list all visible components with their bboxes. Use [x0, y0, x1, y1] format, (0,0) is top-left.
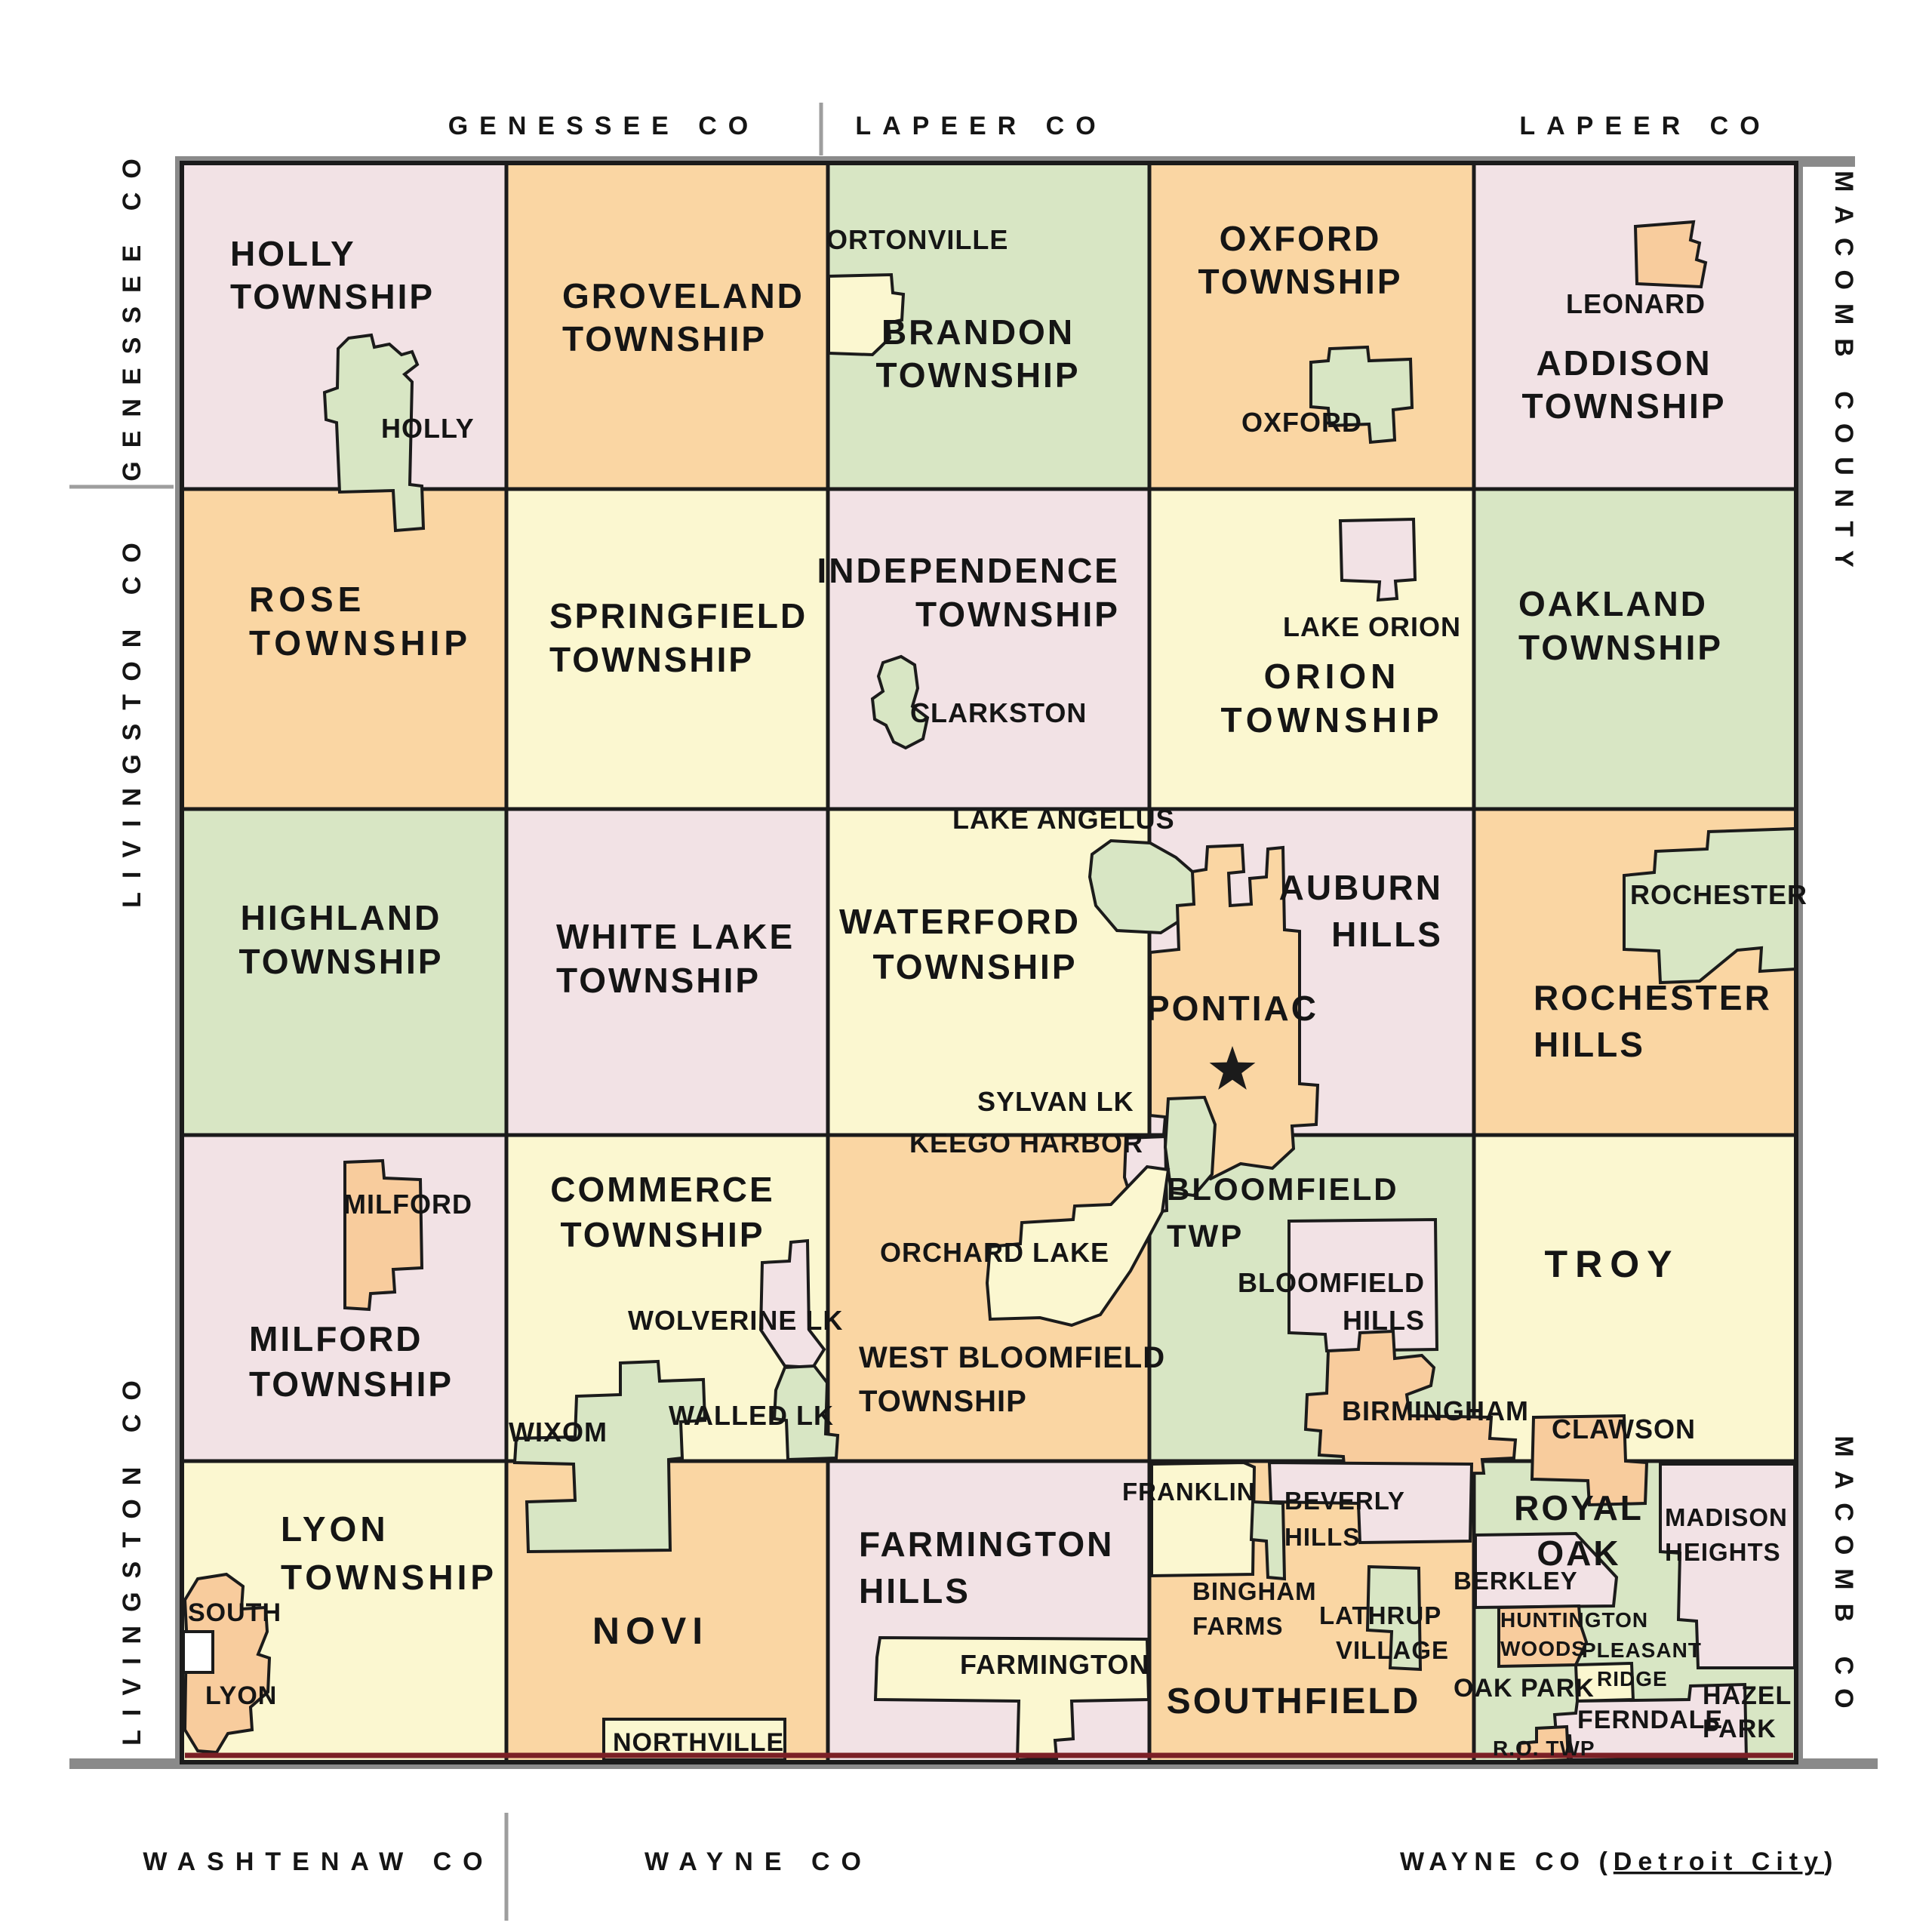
- label-ferndale: FERNDALE: [1577, 1706, 1723, 1734]
- label-clarkston: CLARKSTON: [910, 697, 1087, 728]
- label-novi: NOVI: [592, 1610, 709, 1652]
- label-orchard-lake: ORCHARD LAKE: [880, 1237, 1109, 1268]
- region-independence-township: [828, 489, 1149, 809]
- region-orion-township: [1149, 489, 1474, 809]
- label-milford: MILFORD: [343, 1189, 472, 1220]
- label-ortonville: ORTONVILLE: [826, 224, 1008, 255]
- label-southfield: SOUTHFIELD: [1167, 1681, 1421, 1721]
- label-berkley: BERKLEY: [1454, 1567, 1578, 1595]
- label-lake-orion: LAKE ORION: [1283, 611, 1461, 642]
- label-leonard: LEONARD: [1566, 288, 1706, 319]
- label-macomb-county-right: MACOMB COUNTY: [1829, 171, 1858, 581]
- label-wayne-co-bottom: WAYNE CO: [645, 1847, 872, 1876]
- label-pontiac: PONTIAC: [1146, 989, 1318, 1028]
- label-birmingham: BIRMINGHAM: [1342, 1395, 1529, 1426]
- label-south-lyon-2: LYON: [205, 1681, 277, 1710]
- label-northville: NORTHVILLE: [613, 1728, 784, 1757]
- label-macomb-co-right: MACOMB CO: [1829, 1435, 1858, 1721]
- label-wayne-co-detroit-city: WAYNE CO (Detroit City): [1400, 1847, 1838, 1876]
- label-troy: TROY: [1545, 1243, 1680, 1285]
- label-farmington: FARMINGTON: [960, 1649, 1149, 1680]
- label-wolverine-lk: WOLVERINE LK: [628, 1305, 843, 1336]
- county-map-svg: HOLLYTOWNSHIPGROVELANDTOWNSHIPBRANDONTOW…: [0, 0, 1932, 1932]
- label-south-lyon-1: SOUTH: [188, 1598, 281, 1627]
- region-farmington-hills: [828, 1461, 1149, 1762]
- label-clawson: CLAWSON: [1552, 1414, 1696, 1444]
- label-lapeer-co-top-left: LAPEER CO: [855, 112, 1106, 140]
- label-genessee-co-left: GENESSEE CO: [118, 145, 146, 481]
- label-genessee-co-top: GENESSEE CO: [448, 112, 760, 140]
- label-oak-park: OAK PARK: [1454, 1674, 1595, 1703]
- label-keego-harbor: KEEGO HARBOR: [909, 1128, 1143, 1158]
- label-sylvan-lk: SYLVAN LK: [977, 1086, 1134, 1117]
- label-rochester: ROCHESTER: [1630, 879, 1807, 910]
- label-livingston-co-lower: LIVINGSTON CO: [118, 1367, 146, 1746]
- label-walled-lk: WALLED LK: [669, 1400, 834, 1431]
- label-holly: HOLLY: [381, 413, 475, 444]
- label-wixom: WIXOM: [509, 1417, 608, 1447]
- label-ro-twp: R.O. TWP: [1493, 1737, 1595, 1760]
- label-lapeer-co-top-right: LAPEER CO: [1519, 112, 1770, 140]
- page: HOLLYTOWNSHIPGROVELANDTOWNSHIPBRANDONTOW…: [0, 0, 1932, 1932]
- label-lake-angelus: LAKE ANGELUS: [952, 804, 1175, 835]
- region-addison-township: [1474, 163, 1796, 489]
- label-washtenaw-co-bottom: WASHTENAW CO: [143, 1847, 494, 1876]
- label-oxford: OXFORD: [1241, 407, 1362, 438]
- label-franklin: FRANKLIN: [1122, 1478, 1256, 1506]
- south-lyon-notch: [183, 1632, 213, 1672]
- region-oxford-township: [1149, 163, 1474, 489]
- label-livingston-co-upper: LIVINGSTON CO: [118, 529, 146, 908]
